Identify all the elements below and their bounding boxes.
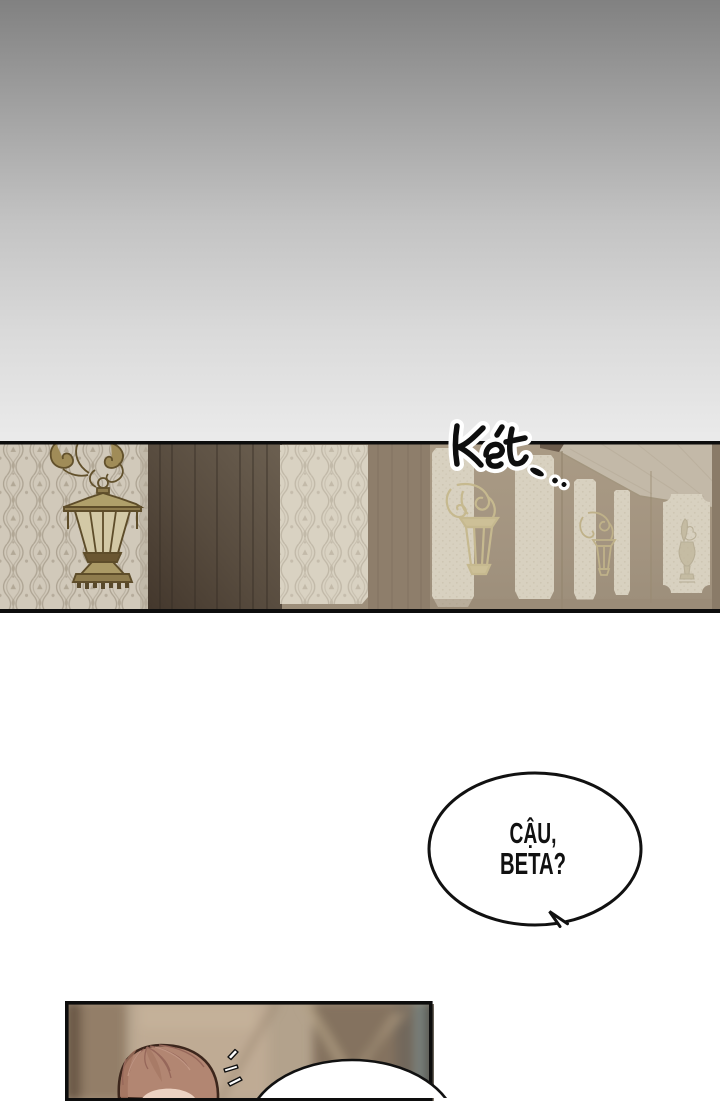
svg-text:CẬU,: CẬU, bbox=[510, 816, 557, 850]
svg-text:BETA?: BETA? bbox=[500, 846, 566, 881]
